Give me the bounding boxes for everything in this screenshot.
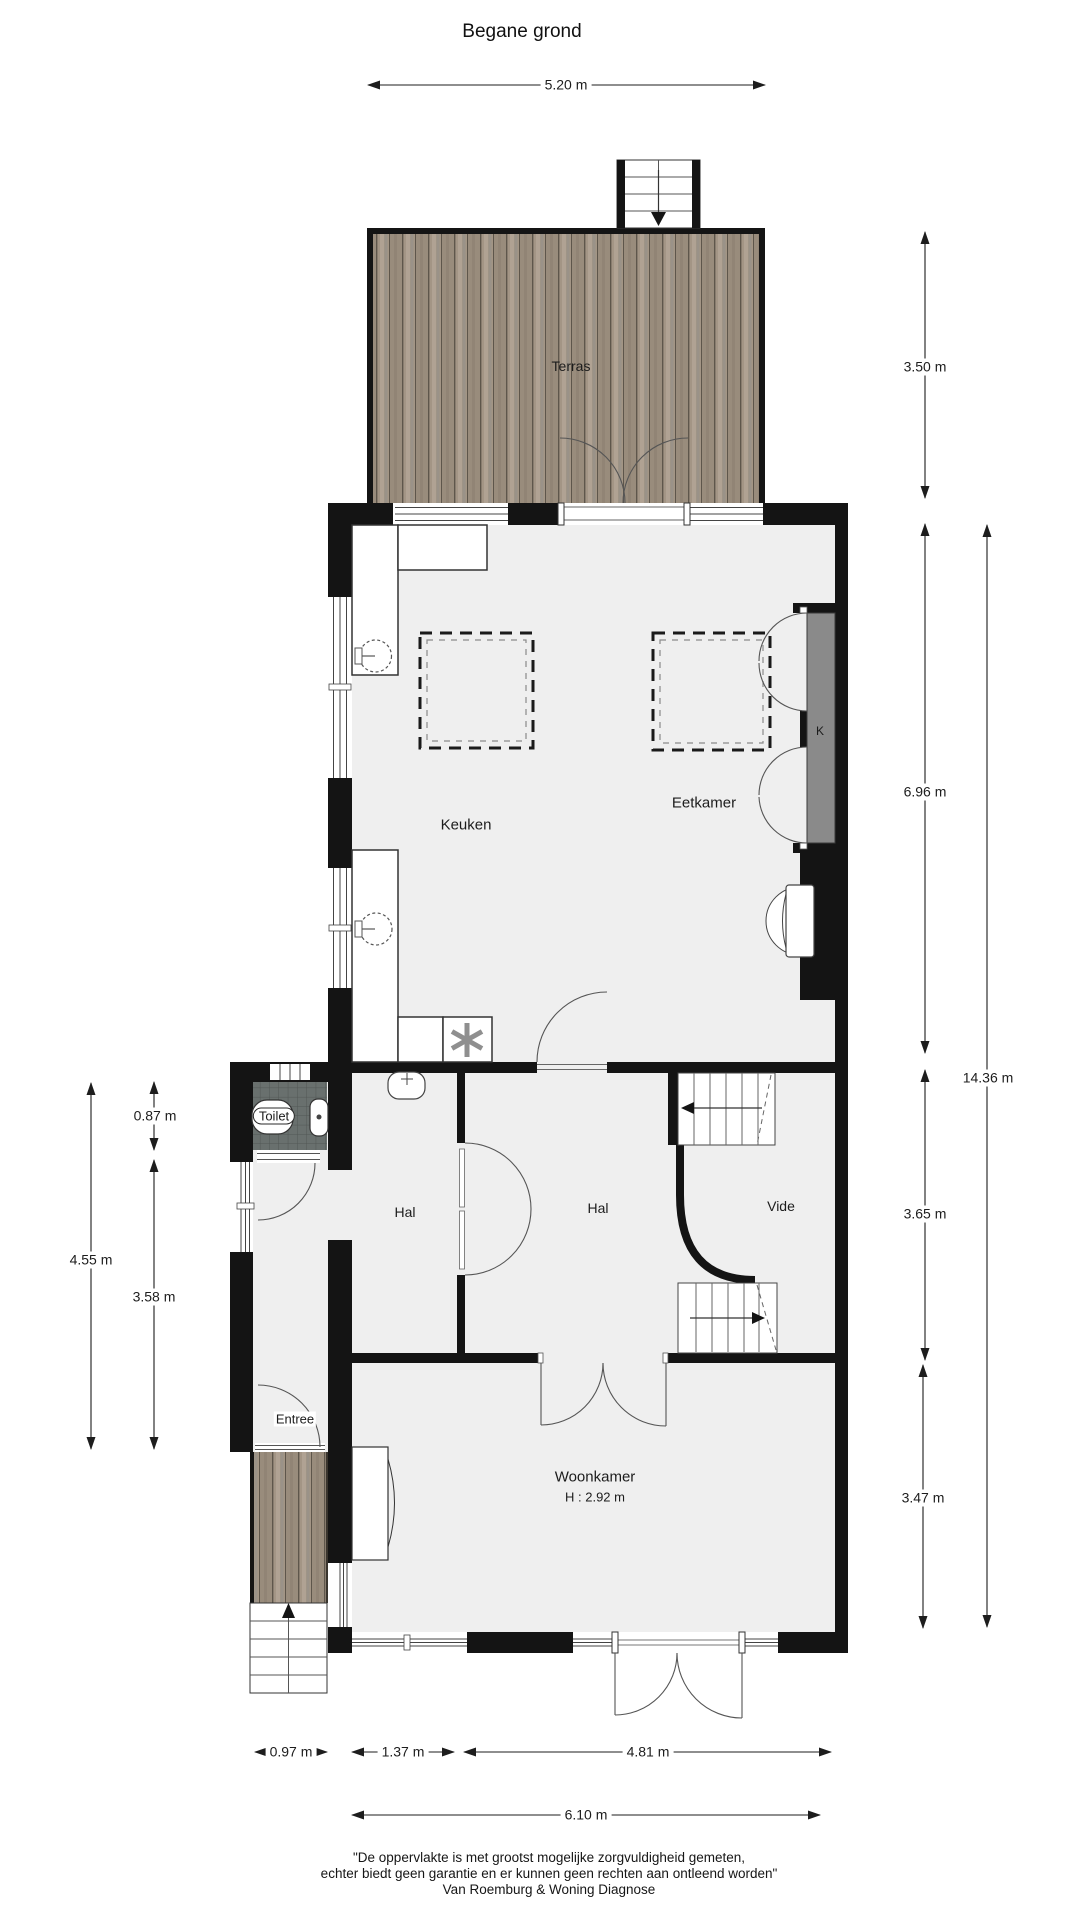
dim-keuken-diepte: 6.96 m	[900, 784, 951, 801]
dim-totaal-breedte: 6.10 m	[561, 1807, 612, 1824]
disclaimer-footer: "De oppervlakte is met grootst mogelijke…	[321, 1850, 778, 1898]
page-title: Begane grond	[462, 21, 581, 43]
room-label-eetkamer: Eetkamer	[672, 795, 736, 812]
dim-woonkamer-diepte: 3.47 m	[898, 1490, 949, 1507]
room-label-keuken: Keuken	[441, 817, 492, 834]
disclaimer-line1: "De oppervlakte is met grootst mogelijke…	[321, 1850, 778, 1866]
dim-hal-diepte: 3.65 m	[900, 1206, 951, 1223]
room-label-vide: Vide	[767, 1198, 795, 1214]
garden-door-left	[615, 1653, 677, 1715]
disclaimer-line3: Van Roemburg & Woning Diagnose	[321, 1882, 778, 1898]
room-label-hal-voor: Hal	[394, 1204, 415, 1220]
dim-hal-breedte: 1.37 m	[378, 1744, 429, 1761]
dim-entree-diepte: 3.58 m	[129, 1289, 180, 1306]
room-label-kast: K	[816, 724, 824, 738]
vide-stairs-top	[678, 1073, 775, 1145]
hal-basin-icon	[388, 1072, 425, 1099]
room-label-hal-midden: Hal	[587, 1200, 608, 1216]
room-label-entree: Entree	[274, 1412, 316, 1427]
room-label-toilet: Toilet	[253, 1108, 295, 1125]
dim-woonkamer-breedte: 4.81 m	[623, 1744, 674, 1761]
dim-terras-diepte: 3.50 m	[900, 359, 951, 376]
dim-totaal-diepte: 14.36 m	[959, 1070, 1018, 1087]
toilet-basin-icon	[310, 1099, 328, 1136]
room-height-woonkamer: H : 2.92 m	[565, 1490, 625, 1505]
porch-stairs	[250, 1603, 327, 1693]
room-label-terras: Terras	[552, 358, 591, 374]
floor-plan-page: Begane grond Terras Keuken Eetkamer K To…	[0, 0, 1080, 1920]
vide-stairs-bottom	[678, 1283, 777, 1353]
floor-plan-drawing	[0, 0, 1080, 1920]
entree-porch-deck	[250, 1452, 328, 1603]
woonkamer-stove	[352, 1447, 395, 1560]
terras-stairs	[617, 160, 700, 228]
garden-door-right	[677, 1653, 742, 1718]
dim-terras-breedte: 5.20 m	[541, 77, 592, 94]
dim-veranda-breedte: 0.97 m	[266, 1744, 317, 1761]
disclaimer-line2: echter biedt geen garantie en er kunnen …	[321, 1866, 778, 1882]
room-label-woonkamer: Woonkamer	[555, 1469, 636, 1486]
dim-toilet-diepte: 0.87 m	[130, 1108, 181, 1125]
dim-entree-totaal: 4.55 m	[66, 1252, 117, 1269]
